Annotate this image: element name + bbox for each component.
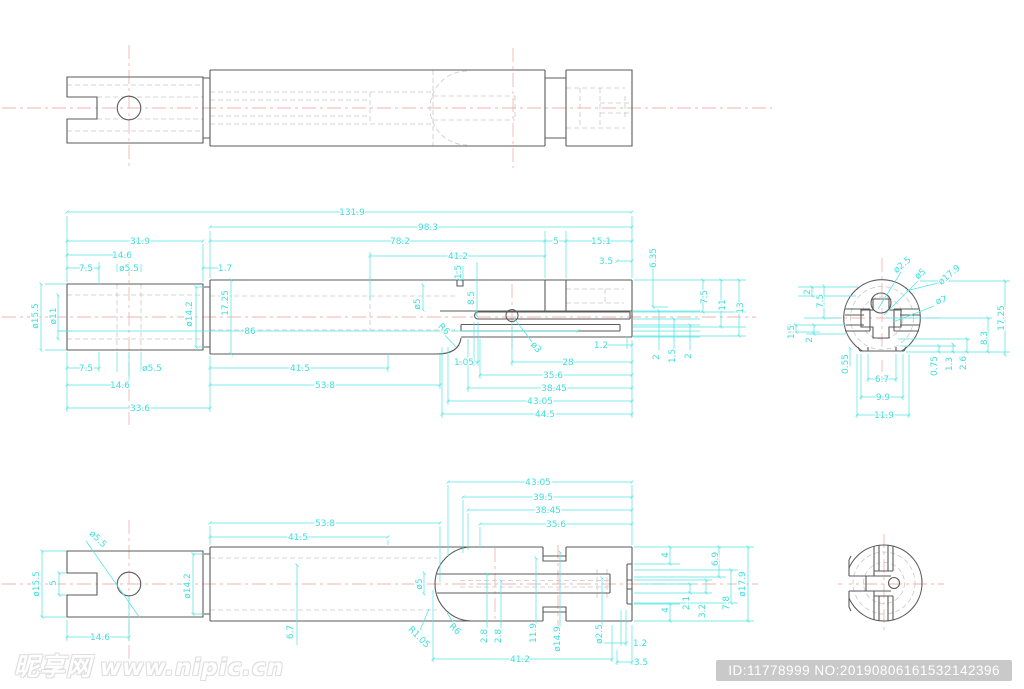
- dimension-label: 0.75: [930, 356, 940, 376]
- dimension-label: 1.5: [454, 265, 464, 279]
- dimension-label: ø2.5: [892, 255, 914, 275]
- dimension-label: ø15.5: [31, 303, 41, 329]
- dimension-label: 14.6: [112, 251, 132, 261]
- watermark-site-url: www.nipic.cn: [100, 655, 284, 681]
- dimension-label: 6.7: [286, 625, 296, 639]
- dimension-label: ø14.2: [185, 301, 195, 327]
- dimension-label: ø5: [913, 267, 928, 282]
- dimension-label: 2.1: [682, 596, 692, 610]
- cross-pin-hole: [889, 578, 900, 589]
- dimension-label: 11.9: [874, 411, 894, 421]
- dimension-label: 41.5: [290, 364, 310, 374]
- side-section-view: ø2.5ø5ø17.9ø727.51.520.556.79.911.90.751…: [787, 255, 1010, 421]
- dimension-label: 39.5: [533, 493, 553, 503]
- dimension-label: 28: [562, 358, 574, 368]
- dimension-label: 131.9: [339, 208, 365, 218]
- dimension-label: 38.45: [535, 506, 561, 516]
- dimension-label: 1.3: [945, 357, 955, 371]
- dimension-label: 41.2: [510, 655, 530, 665]
- watermark-brand: 昵享网: [14, 652, 92, 681]
- dimension-label: 41.5: [288, 533, 308, 543]
- front-section-dimensions: 131.998.378.2515.131.914.67.5ø5.51.741.2…: [31, 208, 746, 420]
- dimension-label: 86: [244, 327, 256, 337]
- drawing-sheet: 131.998.378.2515.131.914.67.5ø5.51.741.2…: [0, 0, 1024, 689]
- dimension-label: 5: [49, 580, 59, 586]
- dimension-label: ø3: [528, 340, 543, 355]
- cad-drawing-canvas: 131.998.378.2515.131.914.67.5ø5.51.741.2…: [0, 0, 1024, 689]
- dimension-label: ø15.5: [32, 571, 42, 597]
- dimension-label: 15.1: [591, 237, 611, 247]
- dimension-label: 3.5: [634, 658, 648, 668]
- dimension-label: 1.7: [218, 264, 232, 274]
- dimension-label: ø17.9: [738, 571, 748, 597]
- dimension-label: R6: [447, 622, 463, 638]
- dimension-label: 53.8: [315, 381, 335, 391]
- dimension-label: ø7: [935, 295, 948, 307]
- dimension-label: 7.8: [722, 596, 732, 611]
- dimension-label: 44.5: [535, 410, 555, 420]
- dimension-label: 2: [684, 353, 694, 359]
- dimension-label: 78.2: [390, 237, 410, 247]
- dimension-label: 5: [553, 237, 559, 247]
- dimension-label: ø17.9: [937, 263, 963, 287]
- dimension-label: ø5: [413, 298, 423, 309]
- counterbore-circle: [871, 293, 891, 313]
- dimension-label: 1.05: [454, 358, 474, 368]
- dimension-label: 2.8: [480, 629, 490, 644]
- dimension-label: 7.5: [816, 294, 826, 308]
- dimension-label: R6: [436, 322, 452, 338]
- dimension-label: ø5.5: [119, 264, 139, 274]
- front-section-view: 131.998.378.2515.131.914.67.5ø5.51.741.2…: [31, 208, 746, 420]
- dimension-label: 33.6: [130, 404, 150, 414]
- dimension-label: 53.8: [315, 519, 335, 529]
- dimension-label: 11: [718, 299, 728, 310]
- dimension-label: 8.5: [467, 291, 477, 305]
- side-view-bottom: [842, 545, 922, 621]
- dimension-label: 35.6: [546, 520, 566, 530]
- dimension-label: 1.5: [668, 349, 678, 363]
- dimension-label: 43.05: [525, 478, 551, 488]
- dimension-label: 0.55: [841, 354, 851, 374]
- dimension-label: 43.05: [527, 397, 553, 407]
- dimension-label: 9.9: [876, 393, 891, 403]
- dimension-label: 38.45: [541, 384, 567, 394]
- bottom-view: 53.841.543.0539.538.4535.6ø5.5ø15.55ø14.…: [32, 478, 754, 668]
- dimension-label: 2: [803, 289, 813, 295]
- dimension-label: 31.9: [130, 237, 150, 247]
- dimension-label: 6.35: [649, 248, 659, 268]
- dimension-label: ø14.2: [183, 573, 193, 599]
- bottom-view-dimensions: 53.841.543.0539.538.4535.6ø5.5ø15.55ø14.…: [32, 478, 748, 668]
- dimension-label: 2: [652, 354, 662, 360]
- dimension-label: 8.3: [980, 331, 990, 345]
- dimension-label: 35.6: [543, 371, 563, 381]
- dimension-label: ø14.9: [553, 626, 563, 652]
- dimension-label: ø5: [415, 578, 425, 589]
- dimension-label: 11.9: [529, 623, 539, 643]
- dimension-label: 1.2: [594, 341, 608, 351]
- dimension-label: ø11: [49, 308, 59, 325]
- dimension-label: 6.7: [875, 375, 889, 385]
- dimension-label: 4: [661, 552, 671, 558]
- dimension-label: 3.2: [698, 604, 708, 618]
- dimension-label: 7.5: [79, 264, 93, 274]
- dimension-label: 13: [736, 302, 746, 313]
- dimension-label: R1.05: [406, 625, 432, 651]
- dimension-label: 2.6: [959, 356, 969, 371]
- dimension-label: 98.3: [418, 223, 438, 233]
- dimension-label: 17.25: [221, 290, 231, 316]
- dimension-label: 14.6: [110, 381, 130, 391]
- centerlines: [2, 45, 944, 662]
- side-section-dimensions: ø2.5ø5ø17.9ø727.51.520.556.79.911.90.751…: [787, 255, 1007, 421]
- watermark: 昵享网www.nipic.cn: [14, 647, 284, 683]
- dimension-label: 4: [661, 607, 671, 613]
- dimension-label: ø5.5: [142, 364, 162, 374]
- dimension-label: 3.5: [599, 257, 613, 267]
- image-id-badge: ID:11778999 NO:20190806161532142396: [716, 660, 1012, 681]
- dimension-label: 17.25: [997, 305, 1007, 331]
- dimension-label: 1.2: [633, 639, 647, 649]
- dimension-label: ø2.5: [595, 624, 605, 644]
- dimension-label: 41.2: [448, 252, 468, 262]
- dimension-label: 7.5: [700, 290, 710, 304]
- dimension-label: 14.6: [90, 633, 110, 643]
- dimension-label: 7.5: [79, 364, 93, 374]
- bottom-view-dim-lines: [42, 482, 754, 665]
- dimension-label: 1.5: [787, 325, 797, 339]
- dimension-label: 2: [805, 337, 815, 343]
- dimension-label: 6.9: [711, 552, 721, 567]
- dimension-label: 2.8: [494, 629, 504, 644]
